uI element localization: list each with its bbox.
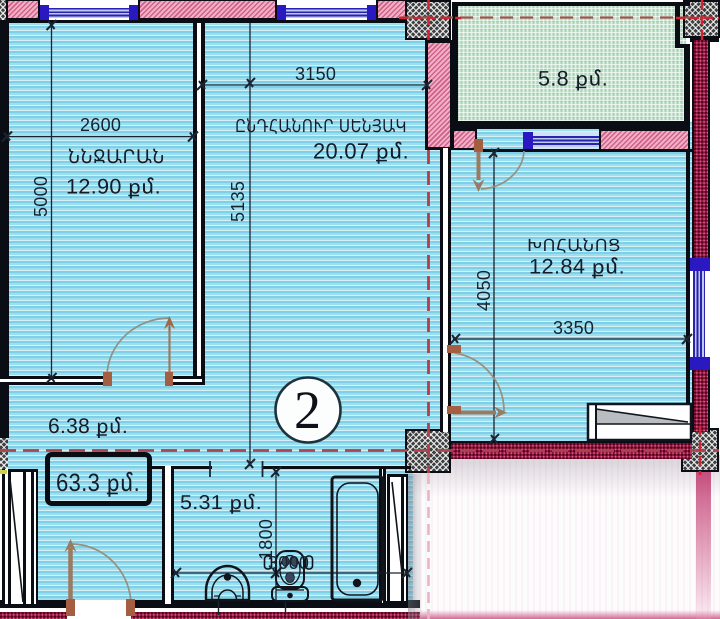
svg-text:2: 2 [294,380,321,440]
